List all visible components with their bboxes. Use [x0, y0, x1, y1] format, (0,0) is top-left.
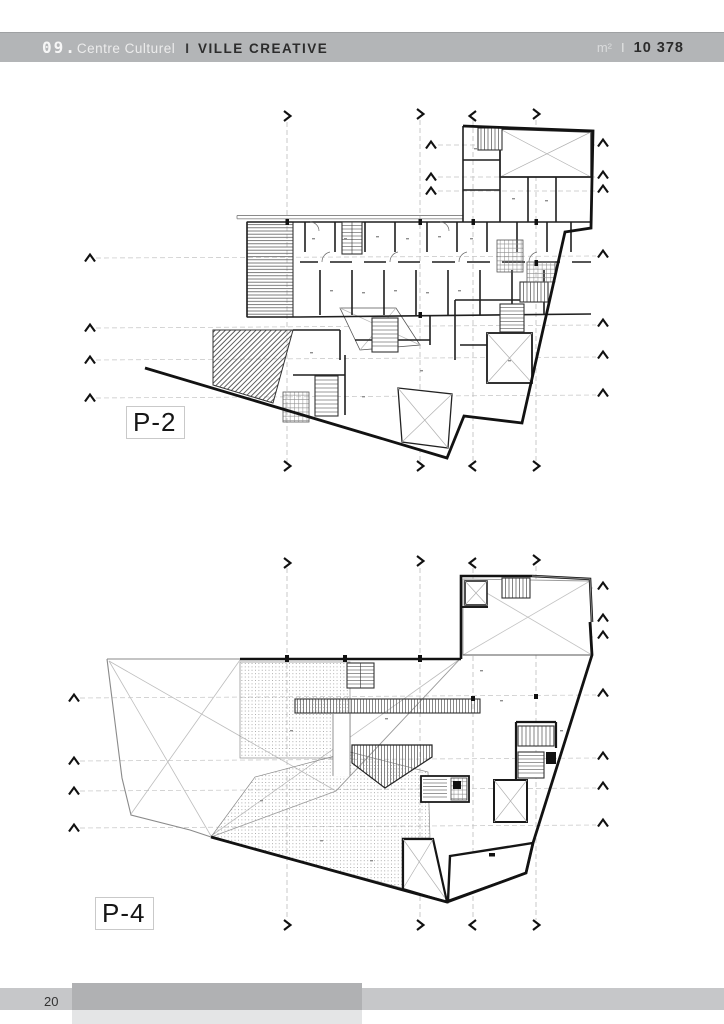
p4-hatch-bar	[295, 699, 480, 713]
footer-pale-block	[72, 1010, 362, 1024]
plan-p4-label: P-4	[95, 897, 154, 930]
floor-plans-canvas	[0, 0, 724, 1024]
p2-striped-terrace	[247, 222, 293, 317]
p4-center-core	[421, 776, 469, 802]
page-number: 20	[44, 994, 58, 1009]
footer-accent-block	[72, 983, 362, 1010]
p4-block-void	[461, 578, 592, 655]
p4-top-stair	[347, 663, 374, 688]
p4-right-cores	[494, 722, 556, 822]
p4-bottom-voids	[403, 839, 533, 902]
plan-p4-drawing	[69, 555, 608, 930]
portfolio-page: 09.Centre CulturelIVILLE CREATIVE m² I 1…	[0, 0, 724, 1024]
p2-canopy-line	[237, 216, 463, 219]
plan-p2-label: P-2	[126, 406, 185, 439]
